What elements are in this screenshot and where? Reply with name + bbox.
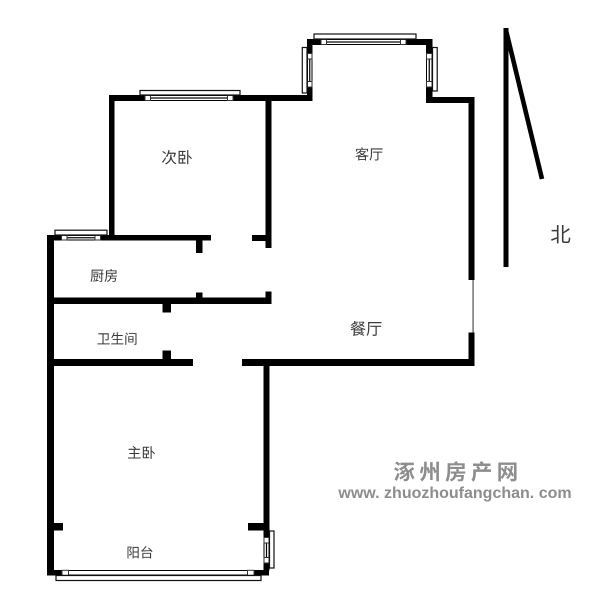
svg-text:www. zhuozhoufangchan. com: www. zhuozhoufangchan. com [337, 485, 571, 502]
